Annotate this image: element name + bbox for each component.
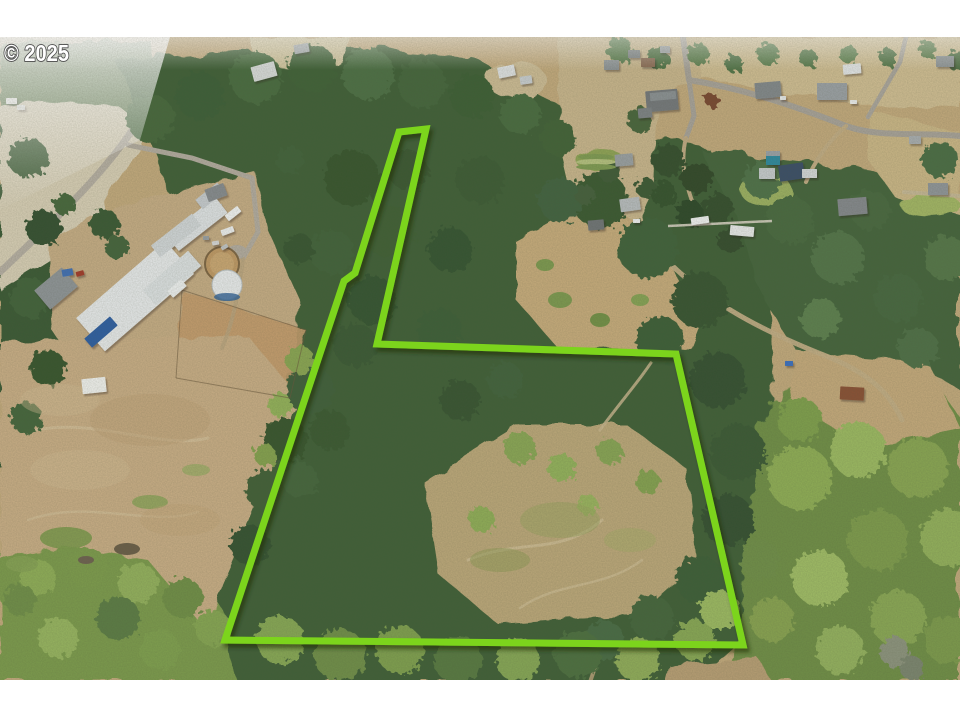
photo-grain-texture [0,37,960,680]
watermark-copyright: © 2025 [4,40,69,66]
real-estate-aerial-listing-photo: © 2025 [0,0,960,720]
photo-content [0,37,960,684]
aerial-photo: © 2025 [0,0,960,720]
